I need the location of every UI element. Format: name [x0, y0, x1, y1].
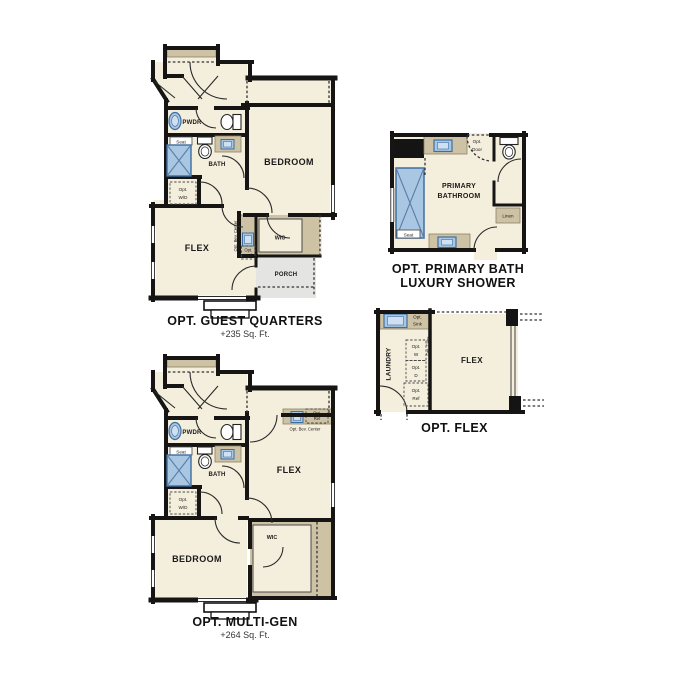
porch-floor	[256, 258, 316, 298]
room-label: LAUNDRY	[386, 347, 393, 380]
bath-toilet-fixture	[198, 137, 213, 159]
room-label: FLEX	[277, 465, 302, 475]
room-label: BATH	[208, 162, 225, 168]
seat-label: Seat	[176, 139, 186, 144]
opt-sink-label: Opt.	[413, 315, 422, 320]
opt-wd-label: Opt.	[179, 497, 188, 502]
laundry-counter-sink	[380, 312, 430, 329]
room-label: FLEX	[185, 243, 210, 253]
floorplan-options-sheet: PWDR BEDROOM FLEX BATH Seat WIC PORCH Op…	[0, 0, 687, 687]
pwdr-sink-fixture	[169, 423, 181, 440]
room-label: BEDROOM	[264, 157, 314, 167]
opt-cabs-label: Opt. Cabs	[426, 337, 431, 356]
guest-quarters-subtitle: +235 Sq. Ft.	[145, 329, 345, 339]
bath-toilet-fixture	[198, 447, 213, 469]
opt-ref-label: Opt.	[244, 248, 252, 253]
primary-bath-floorplan: PRIMARY BATHROOM Seat Linen Opt. Door	[388, 126, 528, 260]
opt-ref-label: Ref	[412, 396, 420, 401]
bath-vanity-sink	[215, 446, 241, 462]
room-label: PWDR	[182, 120, 202, 126]
guest-quarters-floorplan: PWDR BEDROOM FLEX BATH Seat WIC PORCH Op…	[145, 40, 345, 325]
opt-ref-label: Opt.	[313, 411, 321, 416]
wall-block	[509, 396, 521, 412]
multi-gen-floorplan: PWDR BEDROOM FLEX BATH Seat WIC Opt. W/D…	[145, 350, 345, 622]
flex-title: OPT. FLEX	[372, 421, 537, 435]
opt-w-label: W	[414, 352, 419, 357]
bev-center-sink	[243, 233, 254, 246]
wall-block	[506, 309, 518, 326]
opt-wd-label: Opt.	[179, 187, 188, 192]
pwdr-toilet-fixture	[221, 425, 241, 440]
opt-ref-label: Ref	[245, 253, 252, 258]
opt-wd-label: W/D	[179, 505, 189, 510]
opt-ref-label: Opt.	[412, 388, 421, 393]
wall-mass	[394, 139, 424, 158]
room-label: WIC	[267, 535, 278, 541]
opt-door-label: Opt.	[473, 139, 482, 144]
opt-wd-label: W/D	[179, 195, 189, 200]
room-label: BEDROOM	[172, 554, 222, 564]
pwdr-sink-fixture	[169, 113, 181, 130]
shower-fixture	[167, 455, 191, 486]
room-label: BATHROOM	[437, 193, 480, 200]
room-label: PRIMARY	[442, 183, 476, 190]
opt-bev-center-label: Opt. Bev. Center	[290, 427, 321, 432]
opt-w-label: Opt.	[412, 344, 421, 349]
primary-bath-title: OPT. PRIMARY BATH LUXURY SHOWER	[374, 262, 542, 291]
multi-gen-title: OPT. MULTI-GEN	[145, 615, 345, 629]
vanity-sink-bottom	[429, 234, 470, 249]
windows	[390, 188, 395, 222]
room-label: FLEX	[461, 356, 483, 365]
opt-door-label: Door	[472, 147, 482, 152]
room-label: WIC	[275, 236, 286, 242]
shower-fixture	[167, 145, 191, 176]
opt-bev-center-label: Opt. Bev. Center	[233, 220, 238, 251]
bath-vanity-sink	[215, 136, 241, 152]
room-label: BATH	[208, 472, 225, 478]
opt-ref-label: Ref	[314, 416, 321, 421]
linen-label: Linen	[502, 214, 514, 219]
multi-gen-subtitle: +264 Sq. Ft.	[145, 630, 345, 640]
opt-sink-label: Sink	[413, 322, 423, 327]
opt-d-label: Opt.	[412, 365, 421, 370]
seat-label: Seat	[404, 232, 414, 237]
room-label: PWDR	[182, 430, 202, 436]
vanity-sink-top	[424, 136, 467, 154]
room-label: PORCH	[275, 272, 298, 278]
pwdr-toilet-fixture	[221, 115, 241, 130]
guest-quarters-title: OPT. GUEST QUARTERS	[145, 314, 345, 328]
seat-label: Seat	[176, 449, 186, 454]
luxury-shower-fixture	[396, 168, 424, 238]
flex-floorplan: LAUNDRY FLEX Opt. Sink Opt. Cabs Opt. W …	[373, 303, 545, 421]
wic-inner	[253, 525, 311, 592]
